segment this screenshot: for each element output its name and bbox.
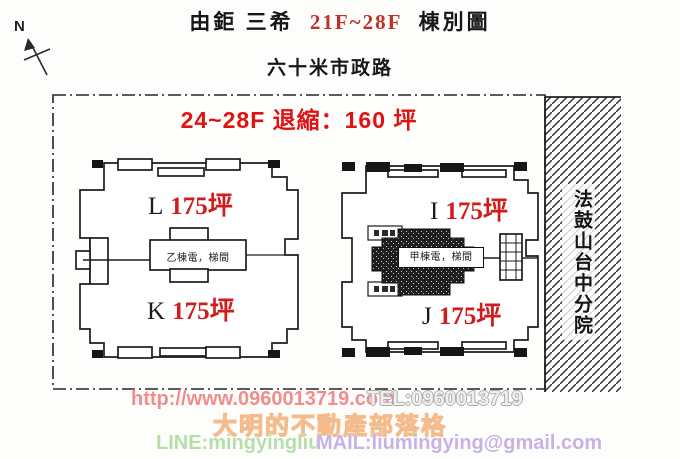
setback-note: 24~28F 退縮：160 坪 bbox=[53, 101, 545, 135]
page-title: 由鉅 三希 21F~28F 棟別圖 bbox=[0, 6, 680, 36]
watermark-mail: MAIL:liumingying@gmail.com bbox=[316, 432, 602, 455]
core-label-building-B: 乙棟電，梯間 bbox=[151, 249, 245, 264]
unit-letter: J bbox=[422, 303, 432, 330]
unit-area: 175坪 bbox=[172, 298, 235, 325]
unit-area: 175坪 bbox=[170, 193, 233, 220]
unit-letter: K bbox=[147, 298, 165, 325]
title-suffix: 棟別圖 bbox=[419, 10, 491, 34]
core-label-building-A: 甲棟電，梯間 bbox=[398, 247, 484, 268]
watermark-line: LINE:mingyingliu bbox=[156, 432, 320, 455]
neighbor-label: 法鼓山台中分院 bbox=[562, 184, 595, 340]
title-project-name: 由鉅 三希 bbox=[189, 10, 293, 34]
road-label: 六十米市政路 bbox=[0, 53, 660, 80]
unit-label-I: I175坪 bbox=[430, 191, 508, 227]
unit-label-K: K175坪 bbox=[147, 291, 235, 327]
floor-plan-sheet: N 由鉅 三希 21F~28F 棟別圖 六十米市政路 24~28F 退縮：160… bbox=[0, 0, 680, 459]
unit-area: 175坪 bbox=[445, 198, 508, 225]
unit-area: 175坪 bbox=[439, 303, 502, 330]
unit-label-J: J175坪 bbox=[422, 296, 501, 332]
unit-letter: L bbox=[148, 193, 163, 220]
title-floor-range: 21F~28F bbox=[310, 10, 403, 34]
unit-label-L: L175坪 bbox=[148, 186, 233, 222]
unit-letter: I bbox=[430, 198, 438, 225]
